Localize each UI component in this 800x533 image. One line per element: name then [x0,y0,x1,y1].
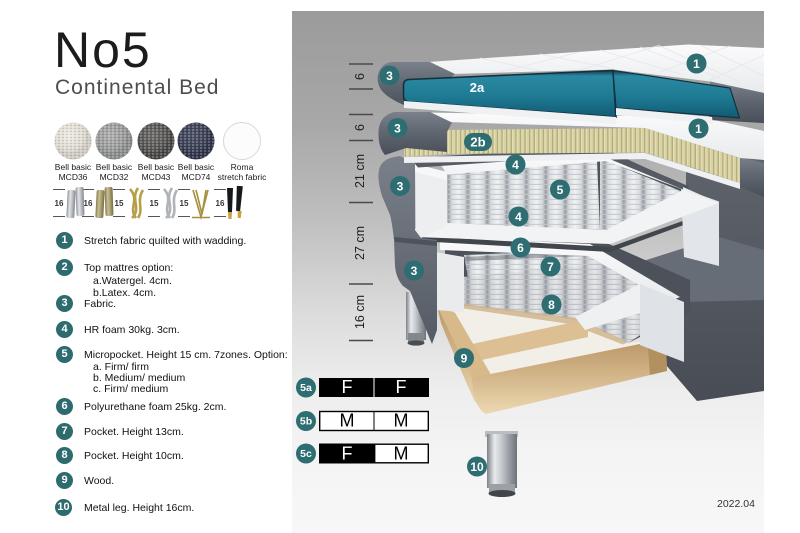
svg-text:2a: 2a [470,80,485,95]
svg-text:7: 7 [547,260,554,274]
svg-text:5b: 5b [300,416,312,428]
svg-text:5c: 5c [300,448,312,460]
svg-text:16 cm: 16 cm [353,295,367,329]
svg-text:4: 4 [515,210,522,224]
svg-text:6: 6 [353,73,367,80]
svg-text:9: 9 [461,352,468,366]
svg-text:3: 3 [386,69,393,83]
svg-text:1: 1 [693,57,700,71]
svg-text:3: 3 [394,122,401,136]
svg-text:5: 5 [557,183,564,197]
svg-text:F: F [342,377,353,397]
svg-text:6: 6 [353,124,367,131]
svg-text:F: F [396,377,407,397]
svg-text:M: M [394,411,409,431]
svg-text:M: M [340,411,355,431]
svg-text:3: 3 [411,264,418,278]
svg-text:21 cm: 21 cm [353,154,367,188]
svg-text:1: 1 [695,122,702,136]
svg-text:2b: 2b [470,135,485,150]
svg-text:27 cm: 27 cm [353,226,367,260]
svg-text:10: 10 [470,460,484,474]
svg-text:5a: 5a [300,382,312,394]
svg-text:2022.04: 2022.04 [717,498,755,510]
svg-text:3: 3 [397,180,404,194]
svg-text:8: 8 [548,298,555,312]
svg-text:6: 6 [517,241,524,255]
svg-text:4: 4 [512,158,519,172]
svg-text:M: M [394,444,409,464]
svg-text:F: F [342,444,353,464]
